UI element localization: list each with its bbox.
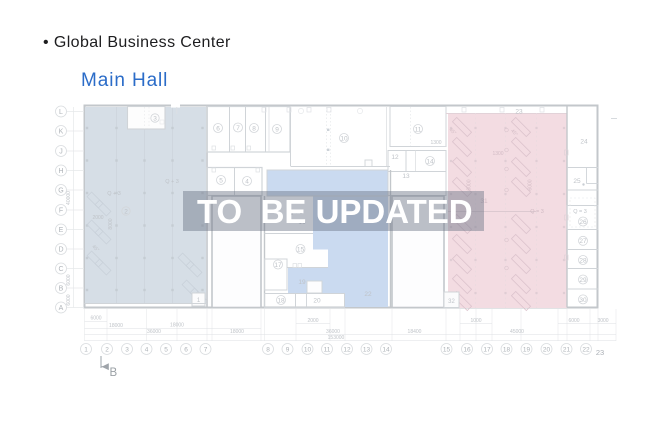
svg-text:J: J [59, 149, 63, 156]
svg-text:30: 30 [579, 297, 587, 304]
svg-text:15: 15 [443, 347, 451, 354]
svg-text:18400: 18400 [408, 329, 422, 335]
svg-text:5: 5 [219, 177, 223, 184]
svg-text:40000: 40000 [66, 191, 72, 205]
svg-text:6000: 6000 [528, 179, 534, 190]
svg-text:6000: 6000 [66, 294, 72, 305]
svg-text:18000: 18000 [109, 323, 123, 329]
svg-text:20: 20 [313, 298, 321, 305]
svg-text:17: 17 [483, 347, 491, 354]
svg-text:26: 26 [579, 219, 587, 226]
svg-text:B: B [59, 286, 64, 293]
svg-text:1: 1 [84, 347, 88, 354]
svg-text:4: 4 [245, 178, 249, 185]
svg-text:Q = 3: Q = 3 [530, 209, 544, 215]
svg-text:12: 12 [343, 347, 351, 354]
svg-text:36000: 36000 [147, 329, 161, 335]
svg-text:1300: 1300 [430, 140, 441, 146]
svg-text:Q + 3: Q + 3 [165, 179, 179, 185]
svg-text:25: 25 [573, 178, 581, 185]
svg-text:8000: 8000 [108, 218, 114, 229]
svg-text:1000: 1000 [470, 318, 481, 324]
svg-text:15: 15 [297, 246, 305, 253]
svg-text:2: 2 [105, 347, 109, 354]
svg-text:6000: 6000 [90, 316, 101, 322]
svg-text:9: 9 [275, 126, 279, 133]
svg-text:21: 21 [563, 347, 571, 354]
svg-text:45000: 45000 [510, 329, 524, 335]
svg-text:27: 27 [579, 238, 587, 245]
svg-text:D: D [58, 247, 63, 254]
svg-text:6000: 6000 [467, 179, 473, 190]
svg-text:1300: 1300 [492, 151, 503, 157]
svg-text:22: 22 [582, 347, 590, 354]
svg-text:7: 7 [204, 347, 208, 354]
svg-text:28: 28 [579, 257, 587, 264]
svg-text:10: 10 [304, 347, 312, 354]
svg-text:32: 32 [448, 299, 455, 305]
svg-text:C: C [58, 266, 63, 273]
svg-text:13: 13 [363, 347, 371, 354]
svg-text:2000: 2000 [307, 318, 318, 324]
svg-text:Q + 3: Q + 3 [107, 191, 121, 197]
svg-text:17: 17 [274, 262, 282, 269]
svg-text:10: 10 [340, 135, 348, 142]
svg-text:18000: 18000 [230, 329, 244, 335]
svg-text:2: 2 [124, 208, 128, 215]
svg-text:6: 6 [216, 125, 220, 132]
svg-text:18: 18 [503, 347, 511, 354]
svg-text:29: 29 [579, 277, 587, 284]
svg-text:13: 13 [402, 173, 410, 180]
svg-text:B: B [110, 367, 118, 379]
svg-text:22: 22 [364, 291, 372, 298]
svg-text:3000: 3000 [597, 318, 608, 324]
svg-text:23: 23 [596, 348, 604, 357]
svg-text:E: E [59, 227, 64, 234]
svg-text:20: 20 [543, 347, 551, 354]
svg-text:19: 19 [523, 347, 531, 354]
svg-text:16: 16 [463, 347, 471, 354]
svg-text:A: A [59, 305, 64, 312]
svg-text:7: 7 [236, 125, 240, 132]
svg-text:14: 14 [382, 347, 390, 354]
svg-text:18: 18 [277, 297, 285, 304]
svg-text:9: 9 [286, 347, 290, 354]
svg-text:12: 12 [391, 154, 399, 161]
svg-text:5: 5 [164, 347, 168, 354]
svg-text:3: 3 [153, 115, 157, 122]
svg-text:8: 8 [266, 347, 270, 354]
svg-text:F: F [59, 208, 63, 215]
svg-text:Q = 3: Q = 3 [573, 209, 587, 215]
svg-text:23: 23 [515, 109, 523, 116]
svg-text:6000: 6000 [568, 318, 579, 324]
svg-text:3: 3 [125, 347, 129, 354]
svg-text:24: 24 [580, 139, 588, 146]
svg-text:L: L [59, 109, 63, 116]
svg-text:18000: 18000 [170, 323, 184, 329]
svg-text:2000: 2000 [92, 215, 103, 221]
svg-text:153000: 153000 [328, 335, 345, 341]
svg-text:11: 11 [415, 126, 422, 133]
svg-text:K: K [59, 129, 64, 136]
svg-text:4: 4 [145, 347, 149, 354]
svg-text:19: 19 [298, 279, 306, 286]
svg-text:6000: 6000 [66, 274, 72, 285]
svg-text:H: H [58, 168, 63, 175]
svg-text:6: 6 [184, 347, 188, 354]
svg-text:11: 11 [324, 347, 331, 354]
svg-text:8: 8 [252, 125, 256, 132]
svg-text:G: G [58, 188, 63, 195]
svg-text:14: 14 [426, 158, 434, 165]
